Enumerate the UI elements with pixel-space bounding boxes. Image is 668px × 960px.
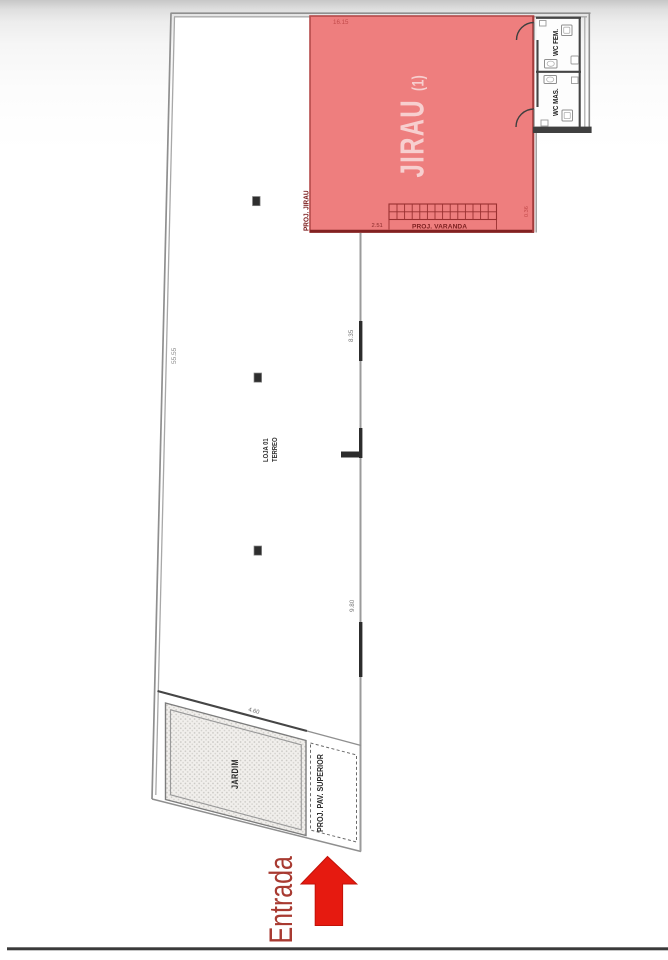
svg-text:LOJA 01: LOJA 01 xyxy=(263,438,271,462)
svg-text:0.36: 0.36 xyxy=(524,206,530,217)
svg-text:PROJ. JIRAU: PROJ. JIRAU xyxy=(303,190,311,231)
svg-text:WC FEM.: WC FEM. xyxy=(553,29,561,56)
svg-text:PROJ. PAV. SUPERIOR: PROJ. PAV. SUPERIOR xyxy=(316,754,325,832)
svg-text:16.15: 16.15 xyxy=(333,19,349,26)
svg-text:JARDIM: JARDIM xyxy=(230,759,240,789)
svg-text:TERREO: TERREO xyxy=(272,437,280,462)
svg-text:55.55: 55.55 xyxy=(171,347,178,364)
svg-text:2.51: 2.51 xyxy=(372,223,383,229)
svg-text:8.35: 8.35 xyxy=(348,329,355,342)
svg-text:9.80: 9.80 xyxy=(349,599,356,612)
svg-text:PROJ. VARANDA: PROJ. VARANDA xyxy=(412,224,467,231)
svg-text:WC MAS.: WC MAS. xyxy=(553,88,561,116)
svg-text:Entrada: Entrada xyxy=(264,856,300,943)
